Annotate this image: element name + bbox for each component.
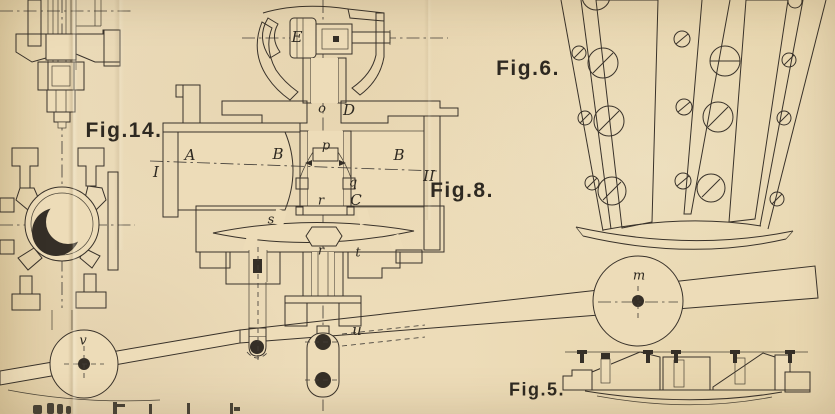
part-label-o: o [318,102,326,117]
part-label-q: q [349,176,357,191]
part-label-s: s [268,213,275,228]
part-label-D: D [343,101,355,119]
section-label-I: I [153,163,159,181]
fig6-drawing [561,0,826,249]
engraving-sheet: Fig.14. Fig.8. Fig.6. Fig.5. E o D A B B… [0,0,835,414]
part-label-t: t [355,246,360,261]
fig5-drawing [563,350,810,405]
lever-drawing [0,266,818,401]
part-label-p: p [322,139,330,154]
part-label-B-left: B [272,145,283,163]
section-label-II: II [423,167,435,185]
fig8-label: Fig.8. [430,179,494,203]
fig14-drawing [0,0,135,330]
part-label-E: E [292,28,303,46]
part-label-B-right: B [393,146,404,164]
part-label-C: C [350,191,361,209]
part-label-A: A [185,146,196,164]
wheel-label-m: m [633,269,645,284]
part-label-r-lower: r [318,244,324,259]
fig5-label: Fig.5. [509,380,565,401]
wheel-label-v: v [79,334,86,349]
fig6-label: Fig.6. [496,57,560,81]
part-label-u: u [352,321,362,339]
fig14-label: Fig.14. [85,119,162,143]
part-label-r-upper: r [318,194,324,209]
engraving-svg [0,0,835,414]
